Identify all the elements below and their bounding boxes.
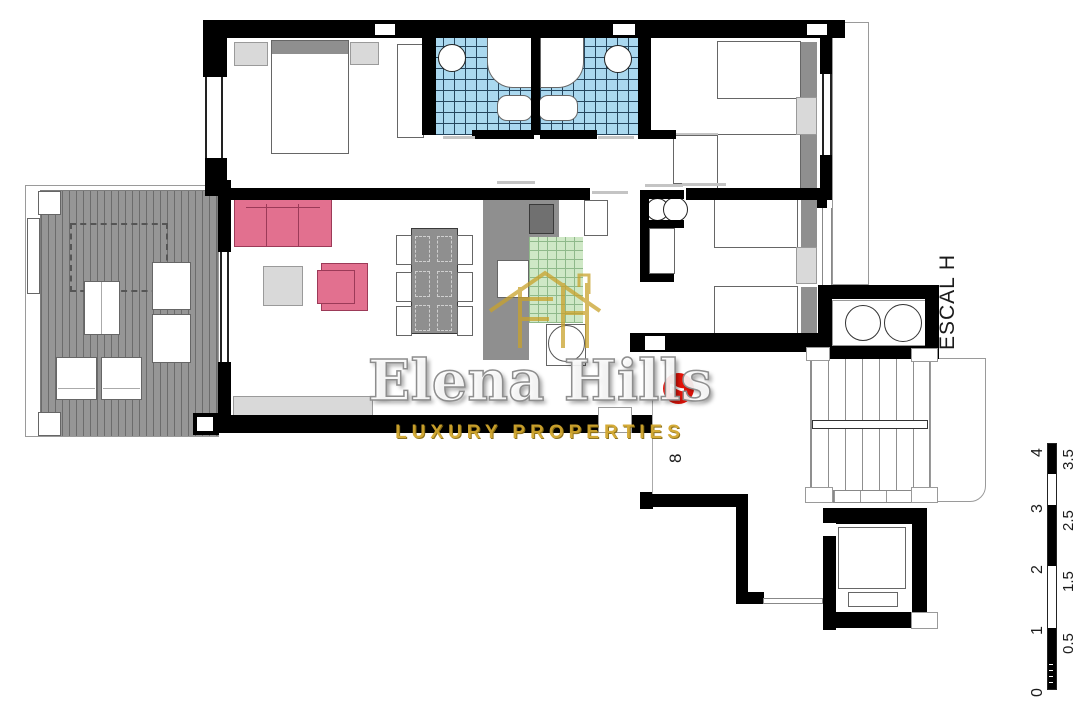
wall-segment — [640, 274, 674, 282]
dining-chair — [396, 272, 412, 302]
wall-segment — [736, 494, 748, 604]
wall-segment — [818, 285, 939, 299]
unit-number-text: 7 — [667, 383, 690, 394]
scale-label-text: 3 — [1029, 504, 1046, 513]
wall-segment — [817, 200, 827, 208]
elevator-landing-block — [911, 612, 938, 629]
stair-outer-boundary — [930, 358, 986, 502]
wall-pillar-gap — [197, 417, 213, 431]
wall-segment — [640, 190, 649, 282]
property-line — [652, 358, 653, 494]
watermark-brand: Elena Hills — [310, 348, 770, 414]
scale-label-text: 0 — [1029, 688, 1046, 697]
entry-door-line — [763, 598, 823, 604]
door-threshold — [676, 133, 718, 135]
neighbor-unit-text: 8 — [666, 454, 685, 463]
wall-segment — [912, 508, 927, 620]
scale-tick — [1049, 664, 1053, 665]
scale-label: 2 — [1029, 565, 1047, 574]
wall-segment — [472, 130, 534, 139]
scale-label: 0 — [1029, 688, 1047, 697]
wall-segment — [203, 20, 227, 77]
wall-pillar-gap — [375, 24, 395, 35]
wardrobe — [397, 44, 424, 138]
sun-lounger — [101, 357, 142, 400]
laundry-drum — [663, 197, 688, 222]
nightstand — [234, 42, 268, 66]
wall-segment — [748, 592, 764, 604]
scale-label: 0.5 — [1060, 633, 1077, 654]
scale-tick — [1049, 676, 1053, 677]
dining-chair — [396, 306, 412, 336]
place-setting — [437, 305, 452, 331]
nightstand — [350, 42, 379, 65]
scale-label: 3 — [1029, 504, 1047, 513]
wall-segment — [638, 130, 676, 139]
machinery-drum — [845, 305, 881, 341]
scale-label: 3.5 — [1060, 449, 1077, 470]
stair-handrail — [812, 420, 928, 429]
nightstand — [796, 247, 817, 284]
unit-number-badge: 7 — [663, 373, 694, 404]
wall-pillar-gap — [645, 336, 665, 350]
scale-bar — [1047, 443, 1057, 690]
wall-segment — [215, 415, 598, 433]
scale-label: 1 — [1029, 626, 1047, 635]
place-setting — [415, 236, 430, 262]
door-threshold — [497, 181, 535, 184]
scale-label: 4 — [1029, 448, 1047, 457]
scale-label: 1.5 — [1060, 571, 1077, 592]
bed-headboard — [801, 135, 817, 191]
lounger-line — [58, 388, 95, 389]
place-setting — [437, 271, 452, 297]
terrace-corner-post — [38, 191, 61, 215]
dining-chair — [457, 235, 473, 265]
door-threshold — [682, 183, 726, 186]
door-threshold — [443, 136, 475, 139]
balcony-right — [832, 22, 869, 285]
wall-segment — [540, 130, 597, 139]
stair-landing-block — [806, 347, 830, 361]
wall-segment — [640, 220, 684, 228]
wall-segment — [820, 155, 832, 200]
scale-tick — [1049, 670, 1053, 671]
wall-segment — [218, 180, 231, 252]
scale-label-text: 1 — [1029, 626, 1046, 635]
dining-chair — [396, 235, 412, 265]
wall-segment — [531, 32, 540, 135]
scale-label-text: 4 — [1029, 448, 1046, 457]
door-pillar — [598, 407, 632, 433]
terrace-window — [27, 218, 40, 294]
stairwell-label: ESCAL H — [936, 254, 960, 350]
machinery-drum — [884, 304, 922, 342]
neighbor-unit-label: 8 — [666, 454, 686, 463]
door-threshold — [598, 136, 634, 139]
place-setting — [415, 271, 430, 297]
shower-tray — [487, 32, 533, 88]
sliding-door — [220, 252, 229, 362]
armchair-seat — [317, 270, 355, 304]
stair-landing-block — [911, 487, 938, 503]
scale-label: 2.5 — [1060, 510, 1077, 531]
scale-label-text: 2.5 — [1060, 510, 1077, 531]
wall-segment — [823, 508, 916, 524]
terrace-chair — [152, 314, 191, 363]
wall-segment — [638, 32, 651, 139]
toilet — [438, 44, 466, 72]
wall-segment — [640, 494, 748, 507]
double-bed — [271, 40, 349, 154]
place-setting — [415, 305, 430, 331]
window — [822, 208, 832, 285]
sofa-seam — [266, 204, 267, 246]
sofa — [234, 198, 332, 247]
fridge — [584, 200, 608, 236]
washbasin — [538, 95, 578, 121]
bed-headboard — [801, 42, 817, 98]
stair-landing-block — [911, 348, 938, 362]
scale-segment — [1048, 505, 1056, 566]
wall-segment — [218, 362, 231, 415]
utility-counter — [649, 228, 675, 274]
floor-plan: ESCAL H 7 8 Elena Hills LUXURY PROPERTIE… — [0, 0, 1080, 702]
scale-segment — [1048, 444, 1056, 474]
wall-segment — [686, 188, 822, 200]
watermark-brand-text: Elena Hills — [368, 348, 712, 414]
scale-label-text: 2 — [1029, 565, 1046, 574]
sofa-seam — [298, 204, 299, 246]
scale-label-text: 0.5 — [1060, 633, 1077, 654]
wall-pillar-gap — [613, 24, 635, 35]
stove — [529, 204, 554, 234]
window — [822, 74, 832, 155]
stair-landing-block — [805, 487, 833, 503]
bed-headboard — [801, 287, 817, 339]
wall-pillar-gap — [807, 24, 827, 35]
terrace-table — [84, 281, 120, 335]
bed-headboard — [801, 199, 817, 247]
terrace-chair — [152, 262, 191, 310]
lounger-line — [103, 388, 140, 389]
dining-chair — [457, 306, 473, 336]
place-setting — [437, 236, 452, 262]
scale-segment — [1048, 628, 1056, 689]
kitchen-sink — [497, 260, 529, 298]
door-threshold — [592, 191, 628, 194]
stair-lower-landing — [833, 490, 913, 503]
wardrobe — [673, 135, 718, 184]
scale-tick — [1049, 682, 1053, 683]
scale-label-text: 3.5 — [1060, 449, 1077, 470]
stairwell-label-text: ESCAL H — [936, 254, 959, 350]
single-bed — [714, 198, 798, 248]
dining-chair — [457, 272, 473, 302]
terrace-table-divider — [101, 282, 102, 334]
kitchen-tiled-floor — [529, 237, 583, 323]
door-threshold — [645, 184, 683, 187]
sun-lounger — [56, 357, 97, 400]
elevator-counterweight — [848, 592, 898, 607]
wall-segment — [632, 415, 652, 433]
toilet — [604, 45, 632, 73]
wall-segment — [218, 188, 590, 200]
wall-segment — [203, 20, 845, 38]
coffee-table — [263, 266, 303, 306]
sofa-back-line — [246, 207, 320, 208]
kitchen-round-table-top — [548, 325, 585, 362]
elevator-door-gap — [823, 523, 836, 536]
bed-headboard — [272, 41, 348, 54]
window — [205, 77, 223, 158]
nightstand — [796, 97, 817, 135]
elevator-car — [838, 527, 906, 589]
single-bed — [714, 286, 798, 340]
single-bed — [717, 41, 801, 99]
scale-label-text: 1.5 — [1060, 571, 1077, 592]
wall-segment — [422, 32, 436, 135]
washbasin — [497, 95, 533, 121]
wall-segment — [823, 612, 913, 628]
single-bed — [717, 134, 801, 192]
terrace-corner-post — [38, 412, 61, 436]
